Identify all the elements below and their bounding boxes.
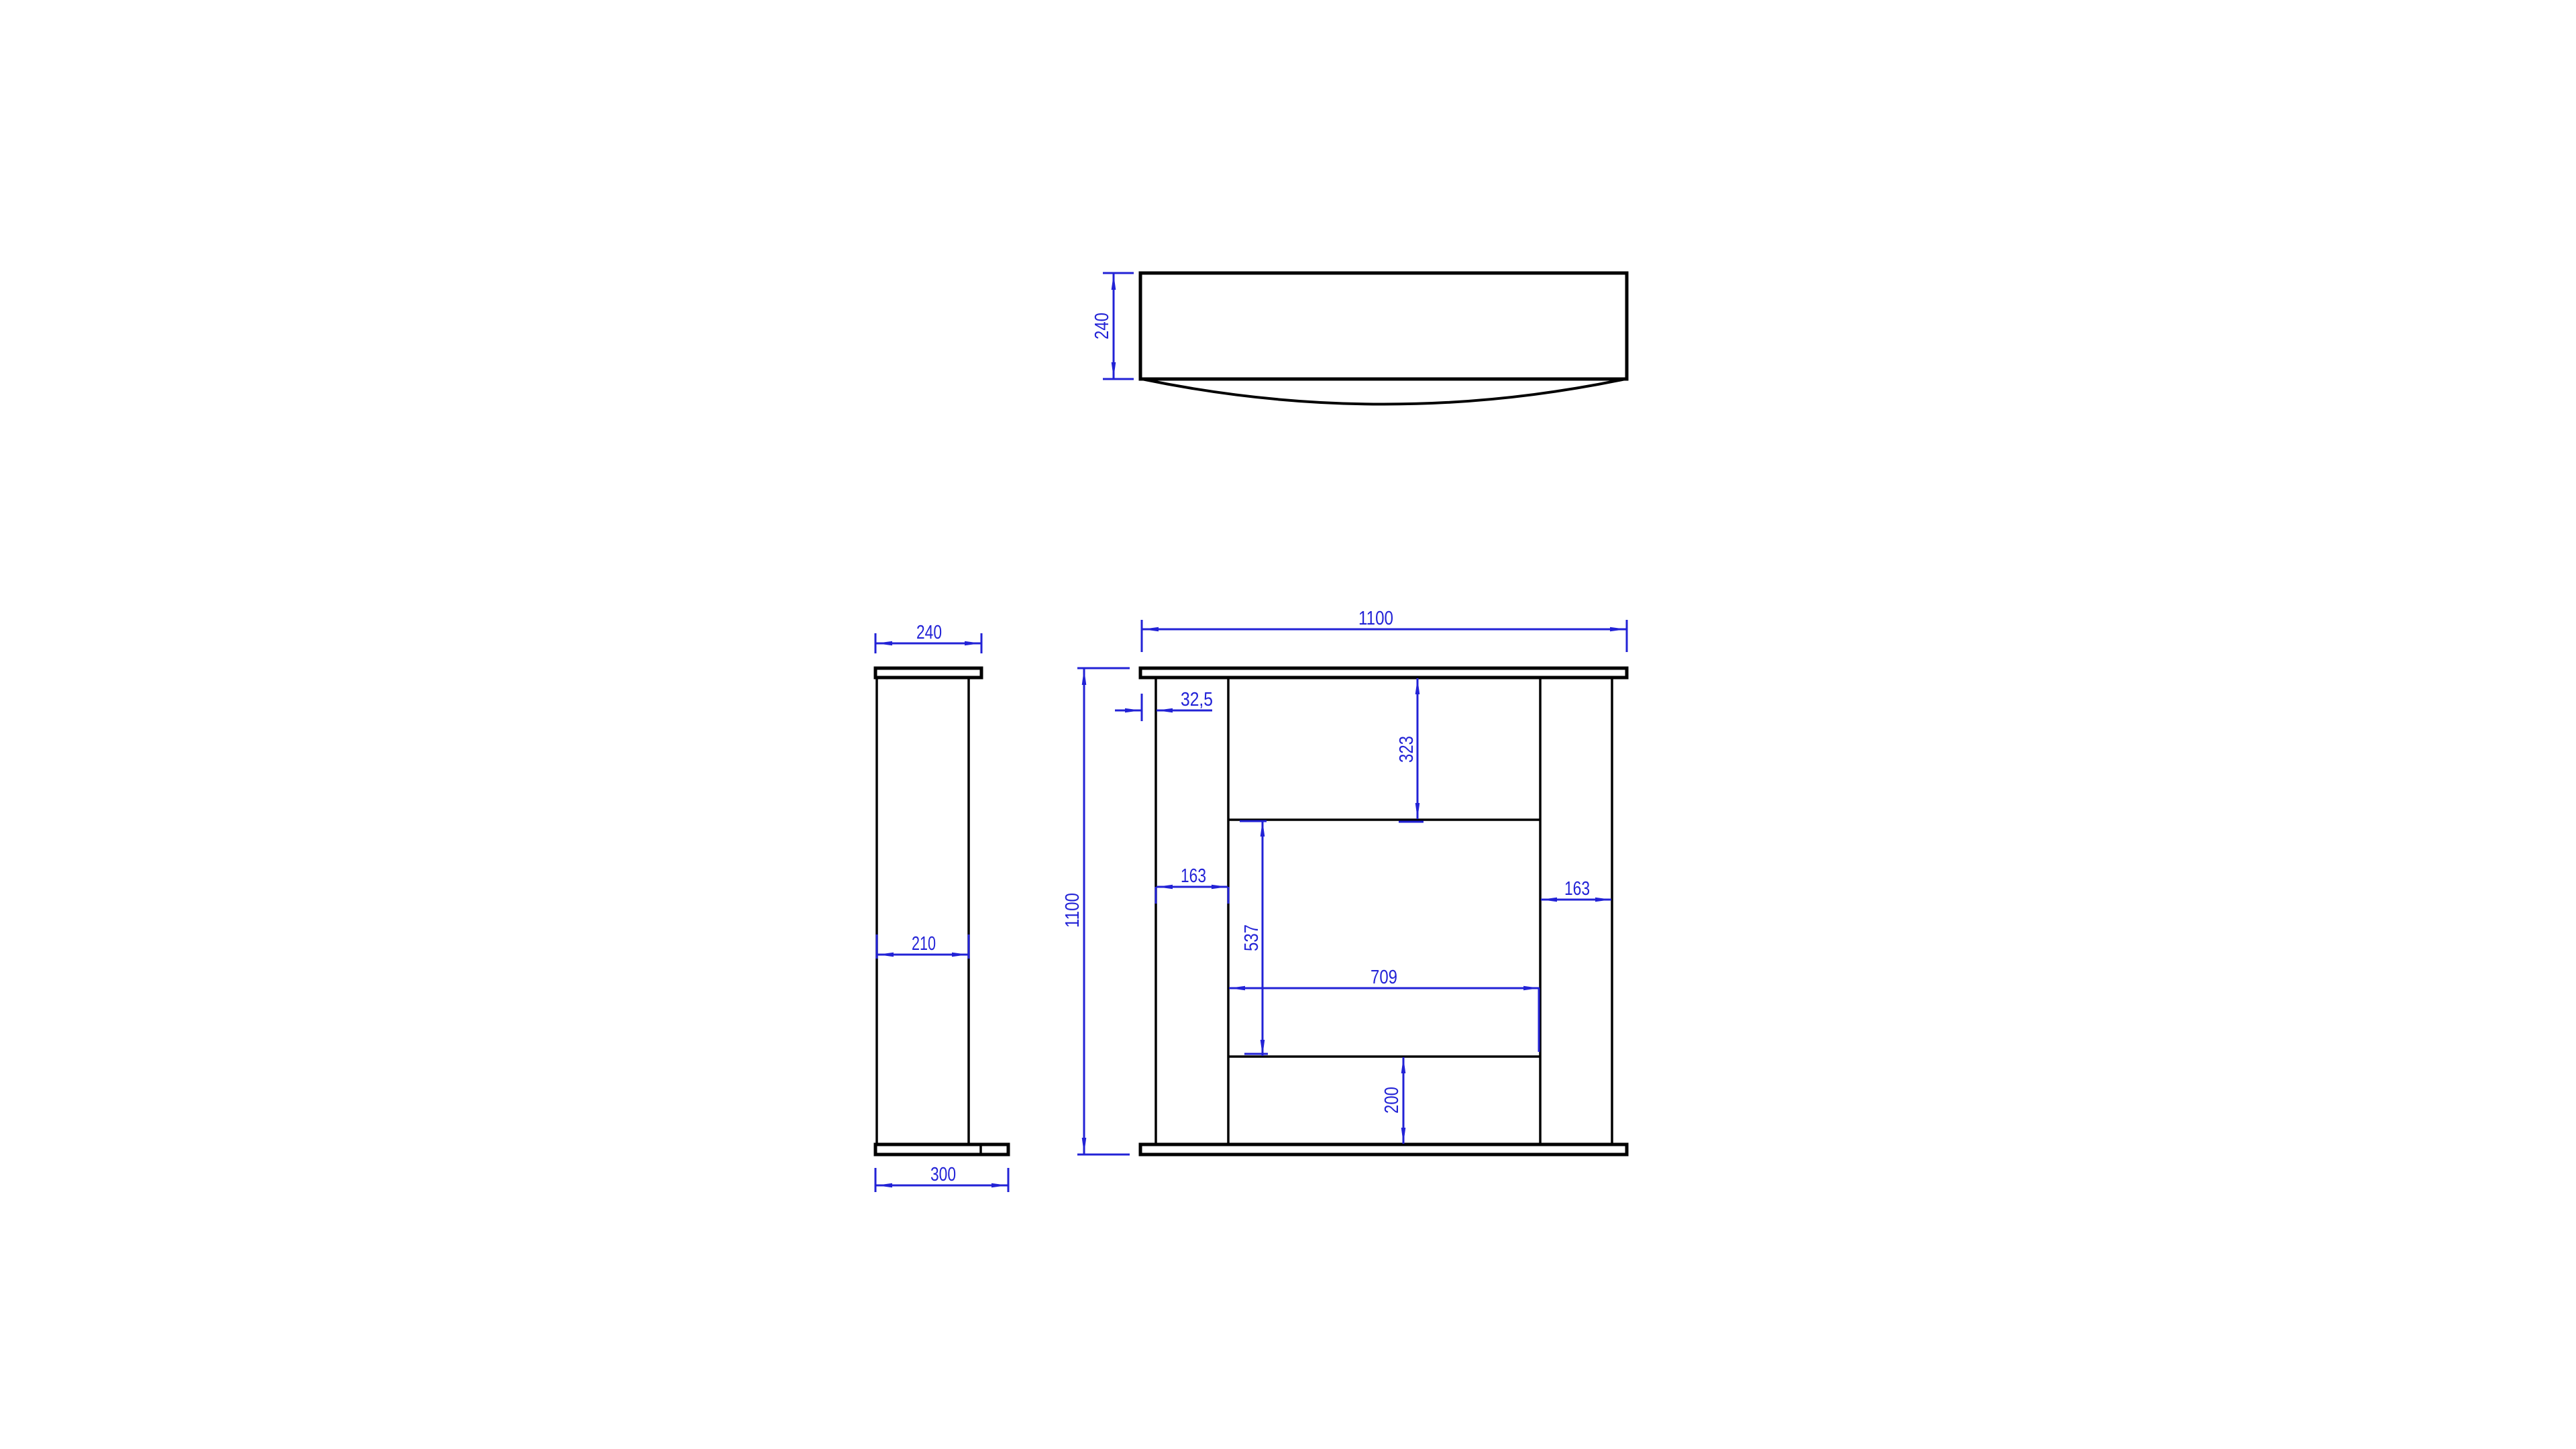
dim-side-cap-depth: 240 bbox=[875, 622, 981, 653]
front-shelf bbox=[1140, 668, 1627, 678]
shelf-curved-front-edge bbox=[1142, 379, 1625, 405]
dim-side-cap-depth-label: 240 bbox=[916, 622, 942, 643]
dim-opening-height: 537 bbox=[1240, 820, 1268, 1056]
side-view: 240 210 300 bbox=[875, 622, 1008, 1192]
dim-side-column-depth: 210 bbox=[877, 933, 969, 959]
dim-side-base-depth: 300 bbox=[875, 1164, 1008, 1192]
dim-front-total-width: 1100 bbox=[1142, 608, 1627, 652]
dim-top-depth: 240 bbox=[1091, 273, 1134, 379]
front-base bbox=[1140, 1144, 1627, 1155]
dim-opening-height-label: 537 bbox=[1241, 924, 1263, 951]
dim-front-total-width-label: 1100 bbox=[1358, 608, 1393, 629]
dim-upper-recess-height-label: 323 bbox=[1396, 736, 1417, 763]
shelf-outline-top bbox=[1140, 273, 1627, 379]
side-cap bbox=[875, 668, 981, 678]
dim-left-leg-width-label: 163 bbox=[1181, 865, 1206, 887]
dim-right-leg-width: 163 bbox=[1541, 878, 1611, 900]
dim-side-base-depth-label: 300 bbox=[930, 1164, 956, 1185]
cad-drawing: 240 240 210 300 bbox=[0, 0, 2576, 1449]
dim-front-total-height-label: 1100 bbox=[1062, 893, 1083, 928]
dim-shelf-overhang: 32,5 bbox=[1115, 689, 1213, 721]
dim-hearth-height-label: 200 bbox=[1381, 1087, 1403, 1114]
top-view: 240 bbox=[1091, 273, 1627, 405]
dim-shelf-overhang-label: 32,5 bbox=[1181, 689, 1213, 710]
dim-top-depth-label: 240 bbox=[1091, 313, 1113, 339]
dim-opening-width-label: 709 bbox=[1371, 967, 1397, 988]
dim-right-leg-width-label: 163 bbox=[1564, 878, 1590, 900]
dim-hearth-height: 200 bbox=[1381, 1057, 1403, 1144]
drawing-canvas: 240 240 210 300 bbox=[0, 0, 2576, 1449]
dim-side-column-depth-label: 210 bbox=[912, 933, 936, 955]
dim-upper-recess-height: 323 bbox=[1396, 678, 1424, 822]
dim-left-leg-width: 163 bbox=[1156, 865, 1228, 904]
dim-front-total-height: 1100 bbox=[1062, 668, 1130, 1155]
front-view: 1100 1100 32,5 323 163 bbox=[1062, 608, 1627, 1155]
dim-opening-width: 709 bbox=[1229, 967, 1540, 1052]
side-base bbox=[875, 1144, 1008, 1155]
